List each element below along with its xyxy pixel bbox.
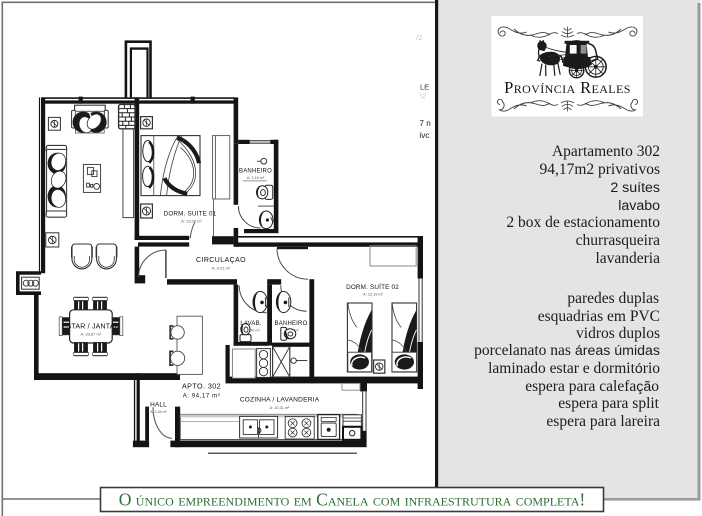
svg-text:LE: LE [420, 82, 429, 91]
svg-text:vidros duplos: vidros duplos [576, 325, 660, 342]
svg-text:porcelanato nas áreas úmidas: porcelanato nas áreas úmidas [474, 342, 660, 359]
svg-text:DORM. SUÍTE 02: DORM. SUÍTE 02 [346, 282, 399, 291]
svg-text:/2: /2 [416, 33, 422, 42]
svg-text:APTO. 302: APTO. 302 [182, 382, 221, 391]
svg-text:espera para split: espera para split [558, 395, 659, 412]
svg-text:7 n: 7 n [419, 119, 431, 128]
svg-text:esquadrias em PVC: esquadrias em PVC [538, 308, 660, 325]
svg-text:DORM. SUITE 01: DORM. SUITE 01 [164, 211, 217, 218]
svg-text:A: 10,31 m²: A: 10,31 m² [270, 406, 290, 410]
svg-text:ESTAR / JANTAR: ESTAR / JANTAR [62, 324, 120, 331]
svg-text:lavanderia: lavanderia [595, 250, 660, 267]
svg-text:A: 3,18 m²: A: 3,18 m² [247, 176, 265, 180]
svg-text:BANHEIRO: BANHEIRO [275, 321, 308, 327]
svg-text:2 suítes: 2 suítes [610, 180, 660, 196]
svg-text:O único empreendimento em Cane: O único empreendimento em Canela com inf… [119, 490, 586, 510]
svg-text:Província Reales: Província Reales [504, 78, 631, 97]
svg-text:espera para lareira: espera para lareira [546, 413, 660, 430]
svg-text:A: 94,17 m²: A: 94,17 m² [183, 394, 221, 400]
svg-text:A: 33,67 m²: A: 33,67 m² [80, 331, 101, 336]
svg-text:CIRCULAÇAO: CIRCULAÇAO [196, 257, 246, 264]
svg-text:HALL: HALL [150, 402, 167, 409]
svg-text:BANHEIRO: BANHEIRO [239, 168, 272, 174]
svg-text:2 box de estacionamento: 2 box de estacionamento [506, 214, 660, 231]
svg-text:laminado estar e dormitório: laminado estar e dormitório [488, 360, 660, 377]
svg-text:A: 13,06 m²: A: 13,06 m² [181, 218, 202, 223]
svg-text:94,17m2 privativos: 94,17m2 privativos [539, 161, 660, 178]
svg-text:A: 2,44 m²: A: 2,44 m² [150, 410, 167, 414]
svg-text:paredes duplas: paredes duplas [567, 290, 659, 307]
svg-text:COZINHA / LAVANDERIA: COZINHA / LAVANDERIA [240, 397, 320, 404]
svg-text:ivc: ivc [419, 131, 429, 140]
svg-text:espera para calefação: espera para calefação [525, 378, 659, 395]
svg-text:Apartamento 302: Apartamento 302 [552, 143, 660, 160]
svg-text:lavabo: lavabo [618, 198, 660, 214]
svg-text:A: 4,21 m²: A: 4,21 m² [212, 265, 231, 270]
svg-text:A: 12,19 m²: A: 12,19 m² [363, 293, 383, 297]
svg-text:\2: \2 [420, 92, 426, 101]
svg-text:churrasqueira: churrasqueira [576, 232, 660, 249]
